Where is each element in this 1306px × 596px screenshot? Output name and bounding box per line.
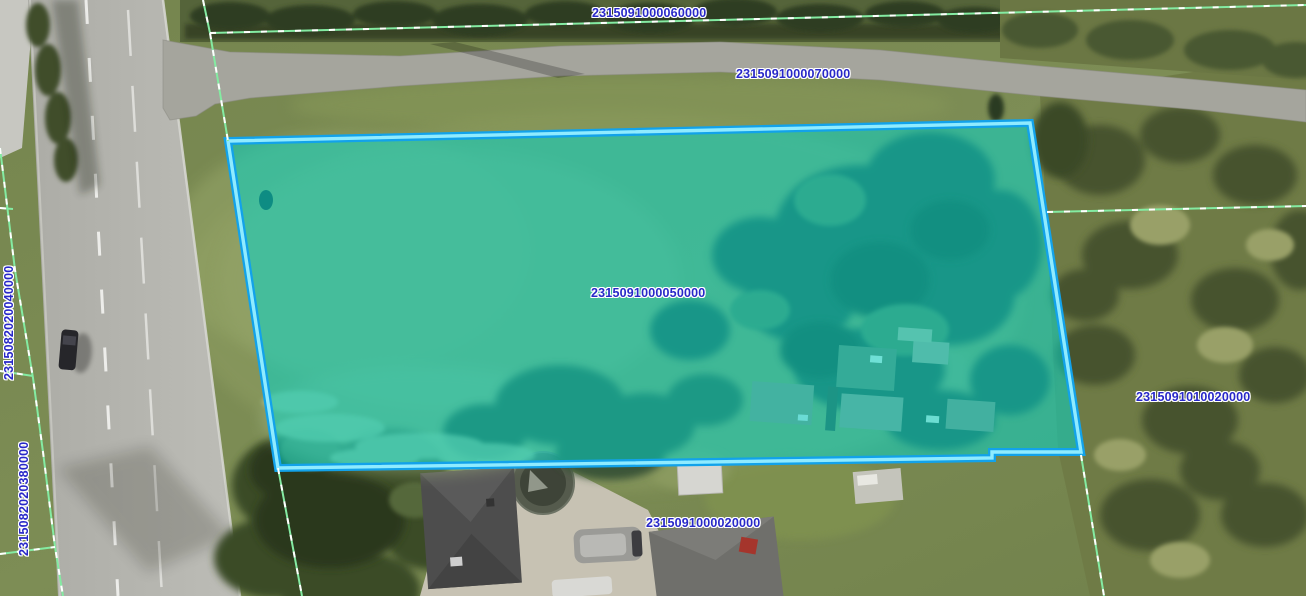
shed	[677, 463, 723, 495]
parcel-id-label: 2315091000060000	[592, 6, 706, 20]
house-roof-main	[420, 467, 522, 589]
parcel-id-label-selected: 2315091000050000	[591, 286, 705, 300]
parcel-id-label: 2315091010020000	[1136, 390, 1250, 404]
parcel-id-label: 2315091000020000	[646, 516, 760, 530]
parcel-id-label: 2315082020040000	[2, 266, 16, 380]
van	[573, 526, 643, 564]
red-structure	[739, 537, 758, 555]
map-viewport[interactable]: 2315091000060000 2315091000070000 231509…	[0, 0, 1306, 596]
parcel-id-label: 2315082020380000	[17, 442, 31, 556]
shed	[853, 468, 904, 504]
parcel-id-label: 2315091000070000	[736, 67, 850, 81]
